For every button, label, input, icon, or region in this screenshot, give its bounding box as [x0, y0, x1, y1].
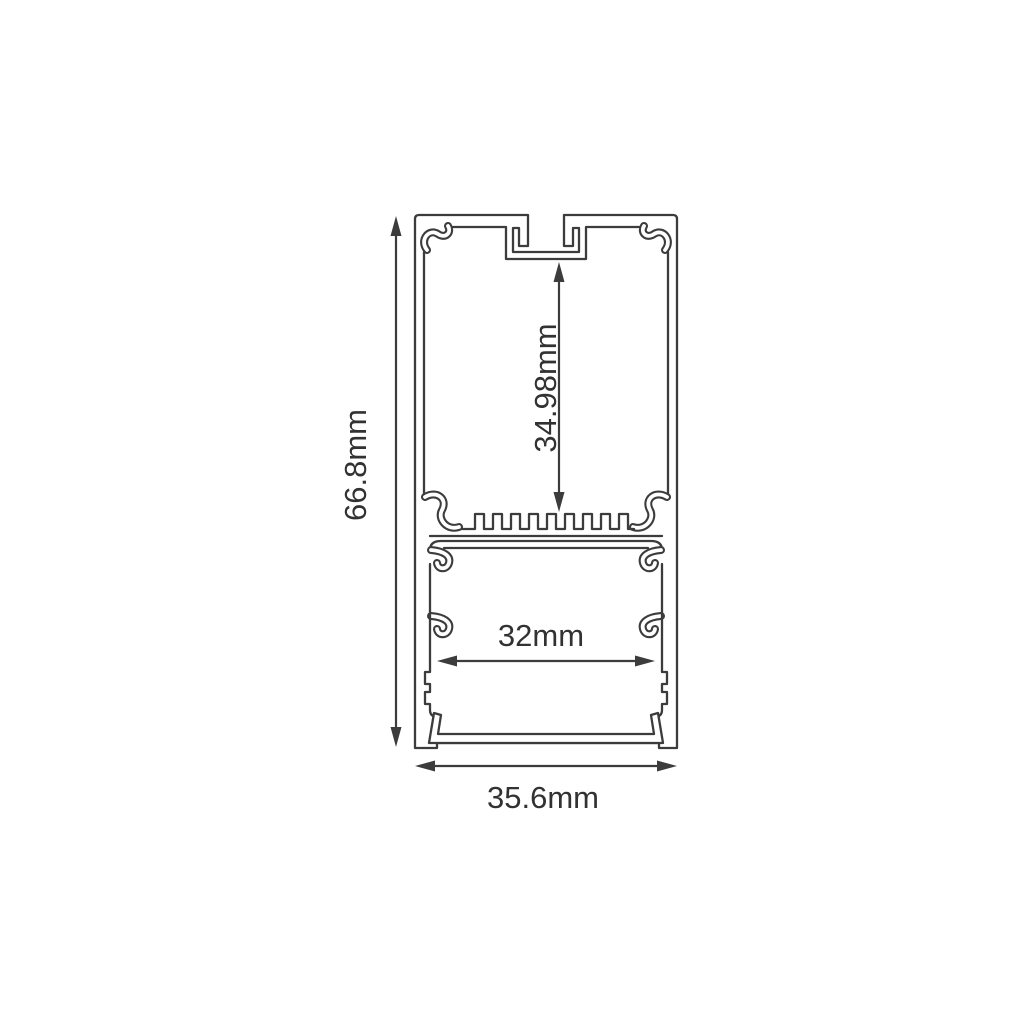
- dimension-overall-height: 66.8mm: [338, 216, 402, 747]
- profile-cross-section-diagram: 66.8mm 34.98mm 32mm 35.6mm: [0, 0, 1024, 1024]
- overall-height-label: 66.8mm: [338, 409, 373, 521]
- arrowhead-down: [391, 727, 402, 747]
- profile-outer-contour: [415, 215, 677, 748]
- drawing-canvas: 66.8mm 34.98mm 32mm 35.6mm: [0, 0, 1024, 1024]
- inner-height-label: 34.98mm: [528, 323, 563, 452]
- dimension-overall-width: 35.6mm: [415, 761, 677, 816]
- arrowhead-left: [415, 761, 435, 772]
- inner-width-label: 32mm: [498, 618, 584, 653]
- arrowhead-right: [657, 761, 677, 772]
- arrowhead-up: [391, 216, 402, 236]
- overall-width-label: 35.6mm: [487, 780, 599, 815]
